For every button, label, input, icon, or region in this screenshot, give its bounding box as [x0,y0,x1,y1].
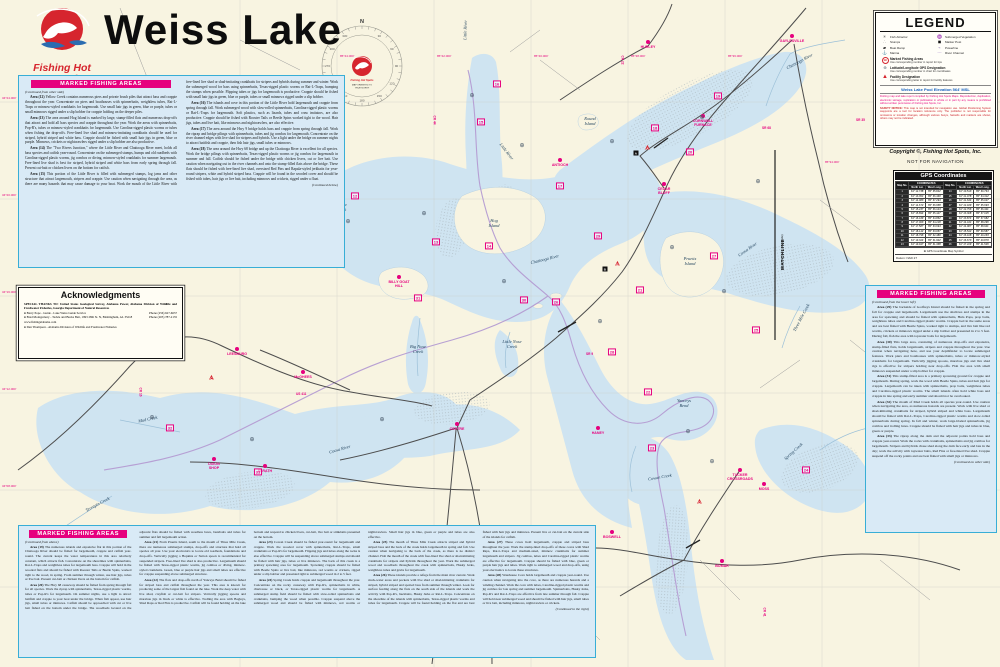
route-label: US 411 [296,392,306,396]
area-number-lead: Area (30) [877,340,893,344]
legend-symbol-label: Marker Post [945,40,991,44]
water-feature-label: Spring Creek [784,442,804,461]
fish-attractor-icon: ✳ [880,35,889,39]
gps-table: Map No.COORDINATESMap No.COORDINATES Nor… [895,181,992,248]
boat-ramp-icon: ▰ [880,46,889,50]
water-feature-label: Little River [463,20,469,40]
gps-coordinate-symbol: ⊕ [501,279,506,285]
powerline-icon: ⌁ [935,46,944,50]
town-label: CEDAR BLUFF [638,187,690,195]
town-label: GAYLESVILLE [766,39,818,43]
marked-fishing-areas-box-upper-left: MARKED FISHING AREAS(Continued from othe… [18,75,345,268]
marked-fishing-areas-header: MARKED FISHING AREAS [29,530,127,538]
gps-coordinate-symbol: ⊕ [609,139,614,145]
fishing-area-paragraph: Area (17) The area around the Hwy 9 brid… [186,127,338,147]
gps-coordinate-symbol: ⊕ [597,319,602,325]
fishing-area-paragraph: Area (12) Yellow Creek contains numerous… [25,95,177,115]
town-marker-dot [646,40,650,44]
facility-square-marker: B [603,267,608,272]
gps-col-mapno: Map No. [896,181,909,190]
water-feature-label: Yanceys Bend [677,399,691,409]
fishing-area-number-marker: 30 [520,296,528,303]
area-number-lead: Area (14) [30,146,46,150]
town-label: BILLY GOAT HILL [373,280,425,288]
designation-desc: Use corresponding letter in report for f… [890,79,952,82]
town-marker-dot [212,457,216,461]
gps-coordinate-symbol: ⊕ [379,417,384,423]
town-marker-dot [762,482,766,486]
designation-desc: Use corresponding number in report for t… [890,61,942,64]
bottom-box-columns: MARKED FISHING AREAS(Continued from abov… [25,530,589,651]
area-number-lead: Area (24) [259,578,274,582]
grid-coordinate-label: 85°34.000' [825,160,839,164]
left-box-columns: MARKED FISHING AREAS(Continued from othe… [25,80,338,260]
route-label: SR 35 [856,118,865,122]
fishing-area-number-marker: 29 [594,232,602,239]
gps-coordinate-symbol: ⊕ [669,245,674,251]
fishing-area-number-marker: 19 [714,92,722,99]
acknowledgment-entry: ● Dan Thompson - Alabama Division of Wil… [24,325,177,329]
town-marker-dot [720,559,724,563]
water-feature-label: Big Nose Creek [410,345,426,355]
fishing-area-paragraph: Area (29) The backside of Godfreys Islan… [872,305,990,339]
town-label: ANTIOCH [534,163,586,167]
gps-coordinate-symbol: ⊕ [469,93,474,99]
grid-coordinate-label: 85°38.000' [631,54,645,58]
fishing-area-number-marker: 27 [710,252,718,259]
grid-coordinate-label: 34°20.000' [2,193,16,197]
designation-text: Facility DesignationUse corresponding le… [890,75,952,82]
area-number-lead: Area (23) [259,540,274,544]
matchline-subtext: (Continued On Other Side) [780,234,784,270]
town-label: HURLEY [622,45,674,49]
gps-title: GPS Coordinates [895,172,992,180]
facility-triangle-marker: ▲B [614,260,623,269]
area-number-lead: Area (33) [877,434,893,438]
page-title: Weiss Lake [104,6,342,54]
area-number-lead: Area (21) [144,540,159,544]
legend-symbol-label: Submerged Vegetation [945,35,991,39]
marked-fishing-areas-box-right: MARKED FISHING AREAS(Continued from the … [865,285,997,533]
town-marker-dot [397,275,401,279]
stumps-icon: ∴ [880,40,889,44]
town-marker-dot [790,34,794,38]
area-number-lead: Area (28) [488,573,503,577]
town-marker-dot [455,422,459,426]
continued-from-note: (Continued from above) [25,540,131,544]
grid-coordinate-label: 34°08.000' [2,484,16,488]
facility-triangle-icon: ▲ [880,75,890,80]
area-number-lead: Area (12) [30,95,46,99]
town-label: ELRATH [239,469,291,473]
area-number-lead: Area (32) [877,400,893,404]
water-feature-label: Terrapin Creek [85,497,111,514]
area-number-icon: 19 [880,57,890,64]
route-label: SR 68 [762,126,771,130]
town-marker-dot [662,182,666,186]
gps-coordinate-symbol: ⊕ [699,115,704,121]
continued-from-note: (Continued from the lower left) [872,300,990,304]
marked-fishing-areas-box-bottom: MARKED FISHING AREAS(Continued from abov… [18,525,596,658]
fishing-area-number-marker: 20 [686,148,694,155]
continued-to-note: (Continued on other side) [872,460,990,464]
marker-post-icon: ◼ [935,40,944,44]
legend-symbol-label: Stumps [890,40,934,44]
route-label: CR 44 [433,115,437,124]
fishing-area-paragraph: Area (30) This large area, consisting of… [872,340,990,374]
continued-from-note: (Continued from other side) [25,90,177,94]
gps-symbol-icon: ⊕ [880,66,890,70]
water-feature-label: Cowan Creek [648,474,672,483]
grid-coordinate-label: 34°24.000' [2,96,16,100]
legend-symbol-label: Boat Ramp [890,46,934,50]
area-number-lead: Area (22) [144,578,159,582]
continued-to-note: (Continued to the right) [483,607,589,611]
safety-notice: SAFETY NOTICE: This map is not intended … [880,107,991,121]
acknowledgments-box: Acknowledgments SPECIAL THANKS TO: Unite… [18,287,183,359]
gps-coordinate-symbol: ⊕ [149,415,154,421]
area-number-lead: Area (25) [373,540,389,544]
route-label: CR 41 [763,607,767,616]
gps-datum: Datum: NAD 27 [895,254,992,260]
facility-square-letter: A [635,151,637,155]
water-feature-label: Chattooga River [530,254,559,266]
acknowledgment-entry: ● Barry Pope - Guide - Lake Weiss Guide … [24,311,177,315]
route-label: SR 9 [586,352,593,356]
water-feature-label: Round Island [584,117,595,127]
marked-fishing-areas-header: MARKED FISHING AREAS [877,290,986,298]
fishing-hot-spots-logo: Fishing Hot Spots® [20,6,104,86]
legend-designation: 19Marked Fishing AreasUse corresponding … [880,57,991,64]
area-number-lead: Area (19) [30,545,45,549]
right-box-column: MARKED FISHING AREAS(Continued from the … [872,290,990,464]
acknowledgment-web: www.fishingalabama.com [24,320,177,324]
water-feature-label: Hog Island [489,219,500,229]
pool-elevation: Weiss Lake Pool Elevation 564' MSL [880,85,991,94]
water-feature-label: Coosa River [329,445,351,456]
area-number-lead: Area (27) [488,540,505,544]
water-feature-label: Little Nose Creek [502,340,521,350]
facility-square-marker: A [634,151,639,156]
legend-symbol-label: River Channel [945,51,991,55]
fishing-area-number-marker: 33 [254,468,262,475]
area-number-lead: Area (13) [30,116,46,120]
town-label: TUCKER CROSSROADS [714,473,766,481]
fishing-area-number-marker: 16 [493,80,501,87]
town-marker-dot [738,468,742,472]
triangle-glyph: ▲ [882,74,888,80]
grid-coordinate-label: 34°16.000' [2,290,16,294]
grid-coordinate-label: 85°40.000' [534,54,548,58]
area-number-lead: Area (29) [877,305,893,309]
fishing-area-number-marker: 12 [351,192,359,199]
copyright-line: Copyright ©, Fishing Hot Spots, Inc. [875,149,996,155]
route-label: CR 16 [139,387,143,396]
facility-triangle-marker: ▲A [644,144,653,153]
fishing-area-number-marker: 25 [752,326,760,333]
gps-coordinate-symbol: ⊕ [519,143,524,149]
fishing-area-paragraph: Area (14) The "Two Rivers Junction," whe… [25,146,177,171]
fishing-area-number-marker: 14 [485,242,493,249]
fishing-area-paragraph: Area (33) The riprap along the dam and t… [872,434,990,458]
legend-symbol-list: ✳Fish Attractor♒Submerged Vegetation∴Stu… [880,35,991,56]
designation-desc: Use corresponding number in chart for co… [890,70,951,73]
grid-coordinate-label: 85°42.000' [437,54,451,58]
fishing-area-paragraph: Area (27) These coves hold largemouth, c… [483,540,589,572]
water-feature-label: Three Mile Creek [793,303,812,332]
acknowledgments-intro: SPECIAL THANKS TO: United States Geologi… [24,302,177,310]
gps-coordinates-box: GPS Coordinates Map No.COORDINATESMap No… [893,170,994,262]
weiss-lake-map-page: { "header": { "title": "Weiss Lake", "br… [0,0,1000,667]
designation-text: Marked Fishing AreasUse corresponding nu… [890,57,942,64]
area-number-lead: Area (17) [191,127,207,131]
town-marker-dot [610,530,614,534]
circled-number: 19 [882,57,889,64]
area-number-lead: Area (31) [877,374,892,378]
area-number-lead: Area (20) [30,583,44,587]
facility-triangle-marker: ▲C [208,374,217,383]
town-marker-dot [235,347,239,351]
grid-coordinate-label: 34°12.000' [2,387,16,391]
continued-to-note: (Continued below) [186,183,338,187]
town-marker-dot [301,370,305,374]
town-marker-dot [263,464,267,468]
gps-coordinate-symbol: ⊕ [721,289,726,295]
area-number-lead: Area (15) [30,172,47,176]
gps-symbol-note: ⊕ GPS Coordinate Map Symbol [895,247,992,254]
compilation-notice: Fishing map and lake report compiled by … [880,95,991,105]
acknowledgment-phone: Phone (256) 627-6637 [149,311,177,315]
fishing-area-number-marker: 26 [552,298,560,305]
legend-designations: 19Marked Fishing AreasUse corresponding … [880,57,991,82]
fishing-area-number-marker: 28 [608,348,616,355]
water-feature-label: Chattooga River [786,53,814,71]
fishing-area-paragraph: Area (31) This stump-filled area is a pr… [872,374,990,398]
facility-letter: C [210,377,212,381]
fishing-area-number-marker: 22 [644,388,652,395]
town-marker-dot [596,426,600,430]
gps-coordinate-symbol: ⊕ [249,437,254,443]
gps-coordinate-symbol: ⊕ [421,211,426,217]
legend-box: LEGEND ✳Fish Attractor♒Submerged Vegetat… [875,12,996,146]
legend-title: LEGEND [880,15,991,32]
grid-coordinate-label: 85°44.000' [340,54,354,58]
town-label: DIXON SHOP [188,462,240,470]
grid-coordinate-label: 85°36.000' [728,54,742,58]
town-label: BOMAR [696,564,748,568]
area-number-lead: Area (18) [191,147,206,151]
marked-fishing-areas-header: MARKED FISHING AREAS [31,80,171,88]
town-label: McGHEES [277,375,329,379]
fishing-area-number-marker: 23 [648,444,656,451]
logo-graphic [25,6,99,56]
town-label: CENTRE [431,427,483,431]
facility-square-letter: B [604,267,606,271]
acknowledgment-phone: Phone (205) 787-2135 [149,315,177,319]
legend-designation: ⊕Latitude/Longitude GPS DesignationUse c… [880,66,991,73]
fishing-area-number-marker: 24 [802,466,810,473]
town-label: LEESBURG [211,352,263,356]
legend-symbol-label: Fish Attractor [890,35,934,39]
water-feature-label: Little River [498,143,514,162]
designation-text: Latitude/Longitude GPS DesignationUse co… [890,66,951,73]
fishing-area-paragraph: Area (23) Cowan Creek should be fished y… [254,540,360,577]
fishing-area-number-marker: 31 [414,294,422,301]
water-feature-label: Coosa River [738,242,759,258]
fishing-area-paragraph: Area (19) The numerous islands and expan… [25,545,131,582]
town-label: MOSS [738,487,790,491]
fishing-area-paragraph: Area (16) The islands and cove in this p… [186,101,338,126]
gps-col-mapno: Map No. [943,181,956,190]
legend-symbol-label: Marina [890,51,934,55]
facility-letter: A [646,147,648,151]
legend-symbol-label: Powerline [945,46,991,50]
not-for-navigation: NOT FOR NAVIGATION [875,159,996,164]
acknowledgments-title: Acknowledgments [24,290,177,300]
fishing-area-paragraph: Area (21) From Pruetts Island, south to … [139,540,245,577]
fishing-area-paragraph: Area (25) The mouth of Three Mile Creek … [368,540,474,572]
gps-row: 1334° 19.947'85° 31.338'2634° 27.229'85°… [896,242,992,246]
fishing-area-number-marker: 21 [636,286,644,293]
area-number-lead: Area (16) [191,101,207,105]
facility-letter: B [616,263,618,267]
area-number-lead: Area (26) [373,573,387,577]
marina-icon: ⚓ [880,51,889,55]
water-feature-label: Pruetts Island [684,257,697,267]
facility-triangle-marker: ▲D [696,498,705,507]
legend-designation: ▲Facility DesignationUse corresponding l… [880,75,991,82]
gps-coordinate-symbol: ⊕ [709,459,714,465]
fishing-area-number-marker: 13 [432,238,440,245]
town-marker-dot [558,158,562,162]
gps-coordinate-symbol: ⊕ [345,219,350,225]
facility-letter: D [698,501,700,505]
gps-coordinate-symbol: ⊕ [685,429,690,435]
fishing-area-number-marker: 17 [556,182,564,189]
town-label: HANEY [572,431,624,435]
fishing-area-number-marker: 15 [477,118,485,125]
acknowledgment-entry: ● Brad Montgomery - Tackle and Bucks Bai… [24,315,177,319]
river-channel-icon: 〰 [935,51,944,55]
fishing-area-number-marker: 18 [651,124,659,131]
fishing-area-paragraph: Area (18) The area around the Hwy 68 bri… [186,147,338,182]
submerged-vegetation-icon: ♒ [935,35,944,39]
gps-coordinate-symbol: ⊕ [755,179,760,185]
fishing-area-number-marker: 32 [166,424,174,431]
fishing-area-paragraph: Area (32) The mouth of Mud Creek holds a… [872,400,990,434]
fishing-area-paragraph: Area (28) Watehouse Cove holds largemout… [483,573,589,605]
route-label: CR 22 [621,55,625,64]
acknowledgments-entries: ● Barry Pope - Guide - Lake Weiss Guide … [24,311,177,329]
water-feature-label: Mud Creek [138,416,158,425]
fishing-area-paragraph: Area (13) The area around Hog Island is … [25,116,177,146]
